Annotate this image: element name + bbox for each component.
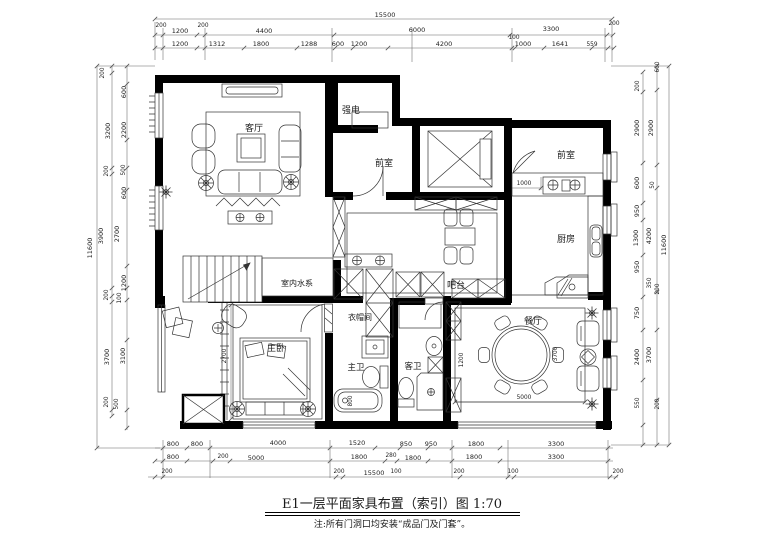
dim-text: 1520: [349, 439, 366, 447]
dim-text: 600: [332, 40, 344, 48]
dim-text: 2900: [633, 120, 641, 137]
dim-text: 800: [191, 440, 203, 448]
dim-text: 4400: [256, 27, 273, 35]
living-room-furniture: [160, 84, 302, 224]
dim-dining-cabinet: 1200: [459, 352, 465, 367]
label-strong-electric: 强电: [342, 104, 360, 116]
dim-text: 3300: [548, 453, 565, 461]
bed-bench: [246, 402, 303, 415]
dim-text: 200: [217, 454, 228, 460]
toilet: [399, 378, 414, 399]
dim-text: 280: [385, 453, 396, 459]
dim-tub: 800: [348, 395, 354, 406]
kitchen-fixtures: [512, 173, 603, 295]
dim-text: 600: [120, 86, 128, 98]
dim-text: 50: [650, 181, 656, 189]
dim-text: 4200: [645, 228, 653, 245]
bar-table: [445, 228, 475, 245]
plant-icon: [160, 186, 173, 199]
cabinet: [333, 197, 345, 257]
dim-kitchen-counter: 1000: [517, 181, 532, 187]
counter: [399, 302, 441, 328]
title-block: E1一层平面家具布置（索引）图 1:70 注:所有门洞口均安装“成品门及门套”。: [265, 496, 520, 530]
dim-text: 950: [425, 440, 437, 448]
dim-text: 1000: [515, 40, 532, 48]
dim-text: 4200: [436, 40, 453, 48]
tv-wall-line: [216, 198, 280, 206]
room-labels: 客厅 强电 前室 前室 厨房 吧台 室内水系 主卧 衣帽间 主卫 客卫 餐厅: [245, 104, 575, 373]
stool: [580, 349, 596, 365]
label-cloakroom: 衣帽间: [348, 312, 372, 322]
armchair: [192, 124, 215, 148]
dim-text: 1800: [405, 454, 422, 462]
dim-text: 5000: [248, 454, 265, 462]
drawing-title: E1一层平面家具布置（索引）图 1:70: [282, 496, 502, 512]
stove: [543, 177, 585, 194]
dining-table: [492, 326, 550, 384]
plant-icon: [586, 398, 599, 411]
bar-furniture: [333, 197, 497, 293]
pillow: [245, 342, 264, 357]
guest-bath-door: [425, 298, 443, 320]
dim-text: 1312: [209, 40, 226, 48]
dim-text: 3200: [104, 123, 112, 140]
tv-stand: [228, 211, 272, 224]
vanity: [345, 254, 392, 267]
dim-text: 2200: [120, 122, 128, 139]
side-table: [199, 176, 214, 191]
dim-text: 3700: [645, 347, 653, 364]
dim-text: 800: [167, 440, 179, 448]
label-vestibule-right: 前室: [557, 149, 575, 161]
dim-text: 200: [104, 396, 110, 407]
drawing-note: 注:所有门洞口均安装“成品门及门套”。: [314, 518, 470, 530]
dim-top-total: 15500: [375, 11, 396, 19]
dim-bottom-total: 15500: [364, 469, 385, 477]
label-kitchen: 厨房: [557, 233, 575, 245]
chair: [460, 209, 473, 226]
dim-text: 750: [633, 307, 641, 319]
cushion: [162, 307, 183, 328]
dim-text: 3900: [97, 228, 105, 245]
dim-text: 559: [586, 42, 597, 48]
side-table: [284, 175, 299, 190]
dim-text: 2700: [113, 226, 121, 243]
label-living-room: 客厅: [245, 122, 263, 134]
dim-text: 500: [114, 398, 120, 409]
armchair: [192, 150, 215, 174]
toilet-tank: [398, 399, 414, 407]
dim-text: 1800: [466, 453, 483, 461]
dim-text: 600: [655, 61, 661, 72]
nightstand: [301, 402, 316, 417]
chair: [479, 348, 490, 363]
label-dining: 餐厅: [524, 315, 542, 327]
chair: [444, 209, 457, 226]
elevator: [428, 131, 492, 187]
bedroom-furniture: [213, 301, 333, 419]
armchair: [577, 366, 599, 391]
dim-text: 1200: [172, 40, 189, 48]
water-feature-area: [262, 258, 333, 296]
label-vestibule-left: 前室: [375, 157, 393, 169]
dim-text: 3700: [103, 349, 111, 366]
chair: [444, 247, 457, 264]
dim-text: 1200: [351, 40, 368, 48]
dim-text: 200: [655, 398, 661, 409]
dim-text: 1300: [632, 230, 640, 247]
dim-text: 500: [121, 164, 127, 175]
dim-text: 1800: [468, 440, 485, 448]
sofa: [218, 170, 282, 194]
dim-text: 3300: [543, 25, 560, 33]
dim-text: 200: [635, 80, 641, 91]
chair: [460, 247, 473, 264]
bathtub: [334, 389, 382, 412]
dim-dining-width: 5000: [517, 395, 532, 401]
dim-text: 950: [633, 261, 641, 273]
dim-text: 550: [635, 397, 641, 408]
guest-bath-fixtures: [398, 298, 443, 410]
dim-text: 200: [161, 469, 172, 475]
dim-text: 200: [612, 469, 623, 475]
label-guest-bath: 客卫: [404, 361, 422, 372]
dim-text: 1288: [301, 40, 318, 48]
dim-text: 2900: [647, 120, 655, 137]
dim-text: 200: [155, 23, 166, 29]
dim-text: 850: [400, 440, 412, 448]
dim-text: 350: [647, 277, 653, 288]
dim-text: 800: [167, 453, 179, 461]
dim-text: 100: [507, 469, 518, 475]
toilet-tank: [380, 366, 388, 388]
dim-text: 950: [633, 205, 641, 217]
dim-text: 1800: [351, 453, 368, 461]
dim-text: 3300: [548, 440, 565, 448]
label-master-bedroom: 主卧: [267, 342, 285, 354]
dim-text: 6000: [409, 26, 426, 34]
dim-left-total: 11600: [86, 238, 94, 259]
floor-plan-canvas: 15500 200 200 1200 4400 6000 3300 200 12…: [0, 0, 760, 537]
master-bath-fixtures: [334, 336, 388, 412]
corner-counter: [545, 277, 588, 295]
armchair: [577, 321, 599, 346]
dim-text: 600: [120, 187, 128, 199]
balcony-furniture: [162, 307, 224, 424]
dining-furniture: [446, 275, 599, 412]
entry-door: [353, 166, 383, 196]
label-master-bath: 主卫: [347, 362, 365, 373]
dim-text: 200: [104, 165, 110, 176]
label-water-feature: 室内水系: [281, 278, 313, 288]
dim-text: 200: [608, 21, 619, 27]
dim-text: 1641: [552, 40, 569, 48]
dim-text: 200: [453, 469, 464, 475]
dim-text: 200: [104, 289, 110, 300]
dim-text: 100: [117, 292, 123, 303]
dim-text: 200: [333, 469, 344, 475]
floor-plan-drawing: 15500 200 200 1200 4400 6000 3300 200 12…: [0, 0, 760, 537]
toilet: [363, 367, 380, 388]
dim-text: 3100: [119, 348, 127, 365]
dim-text: 2400: [633, 349, 641, 366]
sink: [426, 337, 442, 356]
label-bar: 吧台: [447, 279, 465, 291]
nightstand: [230, 402, 245, 417]
stairs: [183, 256, 262, 302]
dim-text: 200: [197, 23, 208, 29]
plant-icon: [586, 307, 599, 320]
dim-text: 100: [390, 469, 401, 475]
dim-text: 200: [655, 283, 661, 294]
column-box: [183, 395, 224, 424]
dim-text: 1200: [120, 275, 128, 292]
bedroom-door: [301, 304, 333, 332]
dim-text: 1800: [253, 40, 270, 48]
dim-text: 600: [633, 177, 641, 189]
dim-text: 200: [100, 67, 106, 78]
dim-text: 4000: [270, 439, 287, 447]
dim-text: 1200: [172, 27, 189, 35]
vestibule-right-door: [513, 151, 535, 173]
shower: [417, 373, 443, 410]
dim-right-total: 11600: [660, 235, 668, 256]
sofa-chaise: [279, 125, 301, 172]
